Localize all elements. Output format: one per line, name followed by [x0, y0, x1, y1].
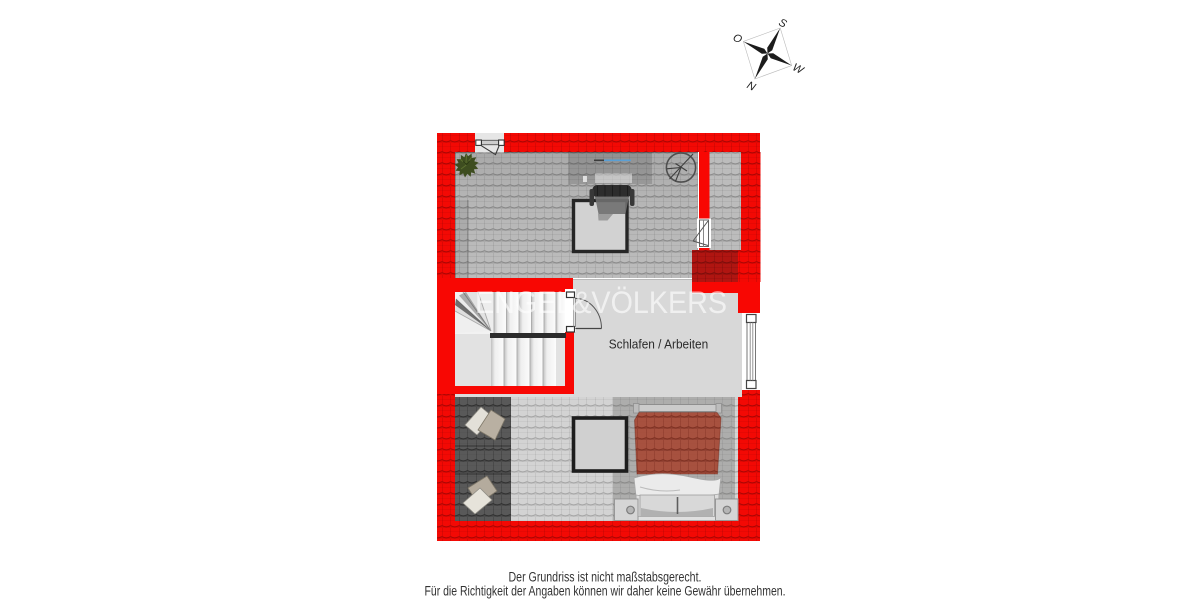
svg-text:Schlafen / Arbeiten: Schlafen / Arbeiten: [609, 337, 709, 351]
svg-text:Der Grundriss ist nicht maßsta: Der Grundriss ist nicht maßstabsgerecht.: [509, 570, 702, 585]
svg-text:Für die Richtigkeit der Angabe: Für die Richtigkeit der Angaben können w…: [425, 584, 786, 599]
svg-text:ENGEL&VÖLKERS: ENGEL&VÖLKERS: [475, 284, 727, 320]
